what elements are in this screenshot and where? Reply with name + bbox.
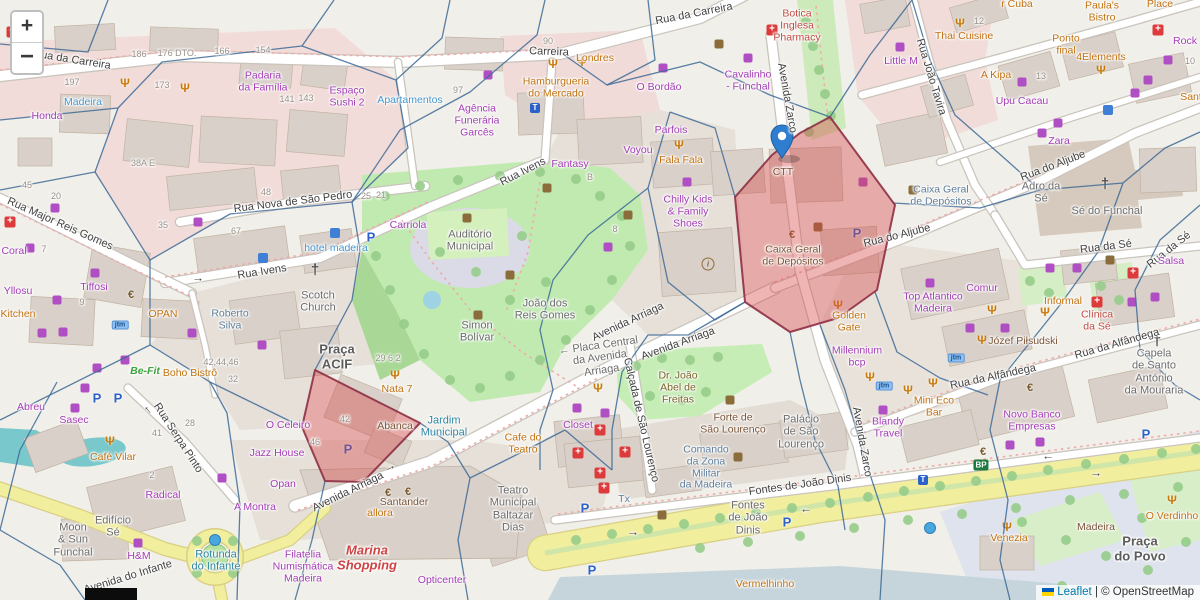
dark-tile-fragment: [85, 588, 137, 600]
ukraine-flag-icon: [1042, 588, 1054, 596]
boundary-line: [670, 112, 735, 197]
boundary-line: [560, 0, 655, 85]
overlay-layer: [0, 0, 1200, 600]
boundary-line: [893, 183, 1123, 208]
boundary-line: [295, 481, 325, 600]
boundary-line: [420, 423, 565, 478]
boundary-line: [912, 0, 1040, 190]
boundary-line: [830, 0, 912, 117]
boundary-line: [1123, 132, 1200, 183]
boundary-line: [302, 0, 450, 80]
boundary-line: [352, 130, 400, 202]
boundary-line: [1135, 205, 1200, 400]
boundary-line: [875, 292, 988, 395]
boundary-line: [0, 530, 85, 600]
boundary-line: [648, 112, 745, 320]
map-canvas[interactable]: PPPPPPPPP+++++++++++ΨΨΨΨΨΨΨΨΨΨΨΨΨΨΨΨΨΨΨ€…: [0, 0, 1200, 600]
boundary-line: [210, 382, 240, 600]
boundary-line: [565, 430, 612, 470]
boundary-line: [790, 332, 845, 530]
boundary-line: [0, 0, 334, 120]
zoom-out-button[interactable]: −: [12, 43, 42, 73]
boundary-line: [458, 478, 470, 600]
zoom-control: + −: [10, 10, 44, 75]
zoom-in-button[interactable]: +: [12, 12, 42, 43]
boundary-line: [150, 80, 408, 260]
highlight-polygon[interactable]: [735, 117, 895, 332]
boundary-line: [400, 0, 545, 130]
boundary-line: [0, 382, 57, 530]
boundary-line: [607, 62, 830, 117]
boundary-line: [820, 325, 885, 600]
boundary-line: [315, 202, 360, 370]
boundary-line: [150, 345, 302, 427]
attribution-bar: Leaflet | © OpenStreetMap: [1036, 585, 1200, 600]
leaflet-link[interactable]: Leaflet: [1057, 586, 1092, 598]
openstreetmap-link[interactable]: © OpenStreetMap: [1101, 586, 1194, 598]
boundary-line: [990, 183, 1123, 600]
boundary-line: [0, 172, 150, 420]
boundary-line: [612, 302, 745, 470]
boundary-line: [0, 108, 118, 190]
boundary-line: [540, 188, 648, 470]
highlight-polygon[interactable]: [302, 370, 420, 482]
